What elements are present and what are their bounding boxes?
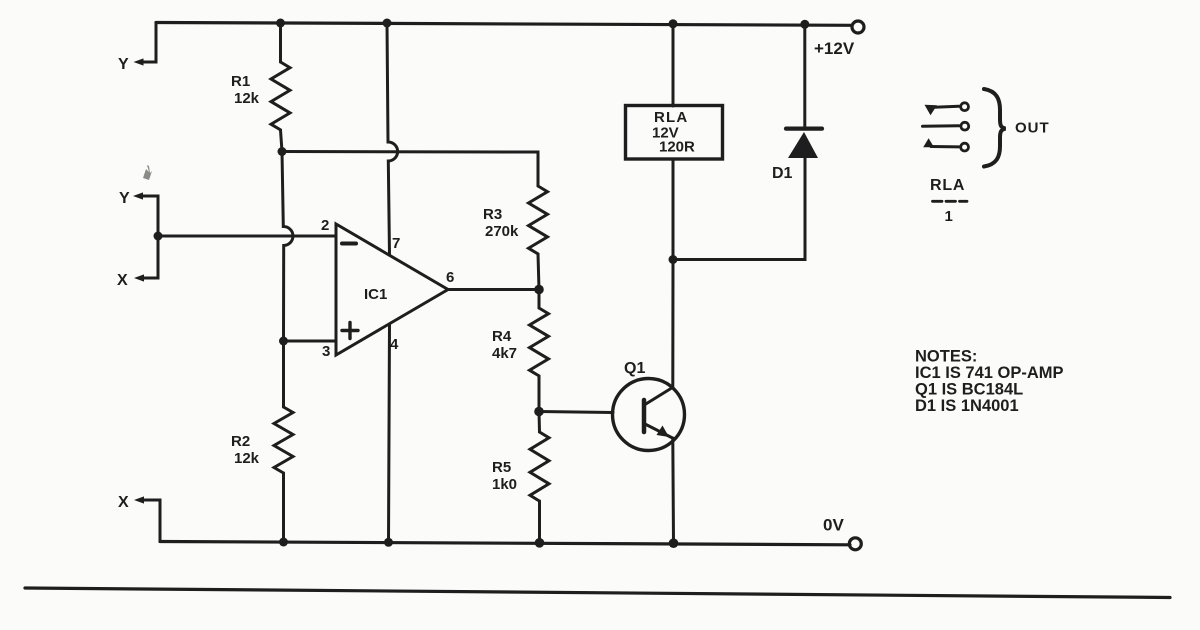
svg-text:Q1: Q1 [624,360,645,377]
svg-text:12k: 12k [234,90,260,107]
svg-text:Y: Y [118,56,129,73]
svg-text:1: 1 [945,208,953,225]
svg-text:RLA: RLA [930,177,965,194]
svg-text:270k: 270k [485,223,519,240]
svg-text:R3: R3 [483,206,502,223]
svg-text:+12V: +12V [814,39,855,58]
svg-text:12k: 12k [234,450,260,467]
svg-text:Y: Y [119,190,130,207]
svg-text:RLA: RLA [654,109,688,126]
svg-text:IC1: IC1 [364,286,387,303]
svg-text:OUT: OUT [1015,120,1050,137]
svg-text:R1: R1 [231,73,250,90]
svg-text:6: 6 [446,269,454,286]
svg-text:4k7: 4k7 [492,345,517,362]
svg-text:4: 4 [390,336,399,353]
svg-text:120R: 120R [659,139,695,156]
svg-text:R4: R4 [492,328,512,345]
svg-text:NOTES:: NOTES: [915,348,977,366]
svg-text:R2: R2 [231,433,250,450]
svg-text:X: X [117,272,128,289]
svg-text:X: X [118,494,129,511]
svg-text:D1: D1 [772,165,793,182]
svg-text:R5: R5 [492,459,511,476]
svg-text:IC1 IS 741 OP-AMP: IC1 IS 741 OP-AMP [915,364,1064,382]
svg-text:0V: 0V [823,516,844,535]
svg-text:7: 7 [392,235,400,252]
svg-text:1k0: 1k0 [492,476,517,493]
svg-text:2: 2 [321,217,329,234]
svg-text:Q1 IS BC184L: Q1 IS BC184L [915,381,1023,399]
svg-text:D1 IS 1N4001: D1 IS 1N4001 [915,397,1019,415]
svg-text:3: 3 [322,343,330,360]
